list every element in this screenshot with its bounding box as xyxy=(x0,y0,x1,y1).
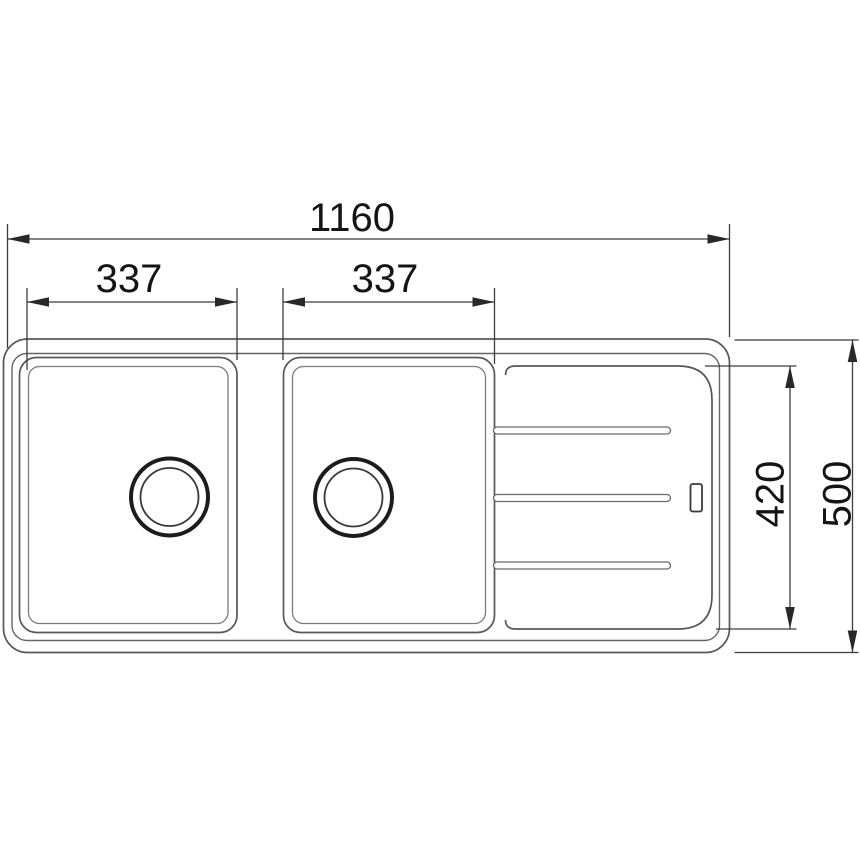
arrowhead-left-icon xyxy=(8,234,30,244)
dim-label-right-bowl-width: 337 xyxy=(352,257,419,301)
dim-label-left-bowl-width: 337 xyxy=(96,257,163,301)
arrowhead-right-icon xyxy=(215,297,237,307)
drainer-groove-bottom xyxy=(494,562,671,569)
drainer-groove-top xyxy=(494,427,671,434)
arrowhead-down-icon xyxy=(848,631,858,653)
arrowhead-left-icon xyxy=(283,297,305,307)
right-drain-inner-ring xyxy=(325,469,383,527)
arrowhead-down-icon xyxy=(785,607,795,629)
sink-dimension-drawing: 1160 337 337 420 500 xyxy=(0,0,860,860)
drainer-groove-middle xyxy=(494,495,671,502)
dim-inner-depth: 420 xyxy=(705,366,797,629)
right-drain-outer-ring xyxy=(315,459,392,536)
right-bowl-inner xyxy=(293,367,486,624)
arrowhead-right-icon xyxy=(708,234,730,244)
arrowhead-left-icon xyxy=(27,297,49,307)
technical-drawing-canvas: 1160 337 337 420 500 xyxy=(0,0,860,860)
dim-label-overall-depth: 500 xyxy=(816,461,860,528)
overflow-slot xyxy=(691,484,703,512)
arrowhead-up-icon xyxy=(785,366,795,388)
sink-body xyxy=(4,339,730,653)
arrowhead-right-icon xyxy=(473,297,495,307)
left-drain-outer-ring xyxy=(131,459,208,536)
arrowhead-up-icon xyxy=(848,340,858,362)
dim-label-inner-depth: 420 xyxy=(749,461,793,528)
dim-right-bowl-width: 337 xyxy=(283,257,495,364)
left-drain-inner-ring xyxy=(141,468,199,526)
left-bowl-outer xyxy=(20,358,238,633)
dim-label-overall-width: 1160 xyxy=(309,196,395,240)
